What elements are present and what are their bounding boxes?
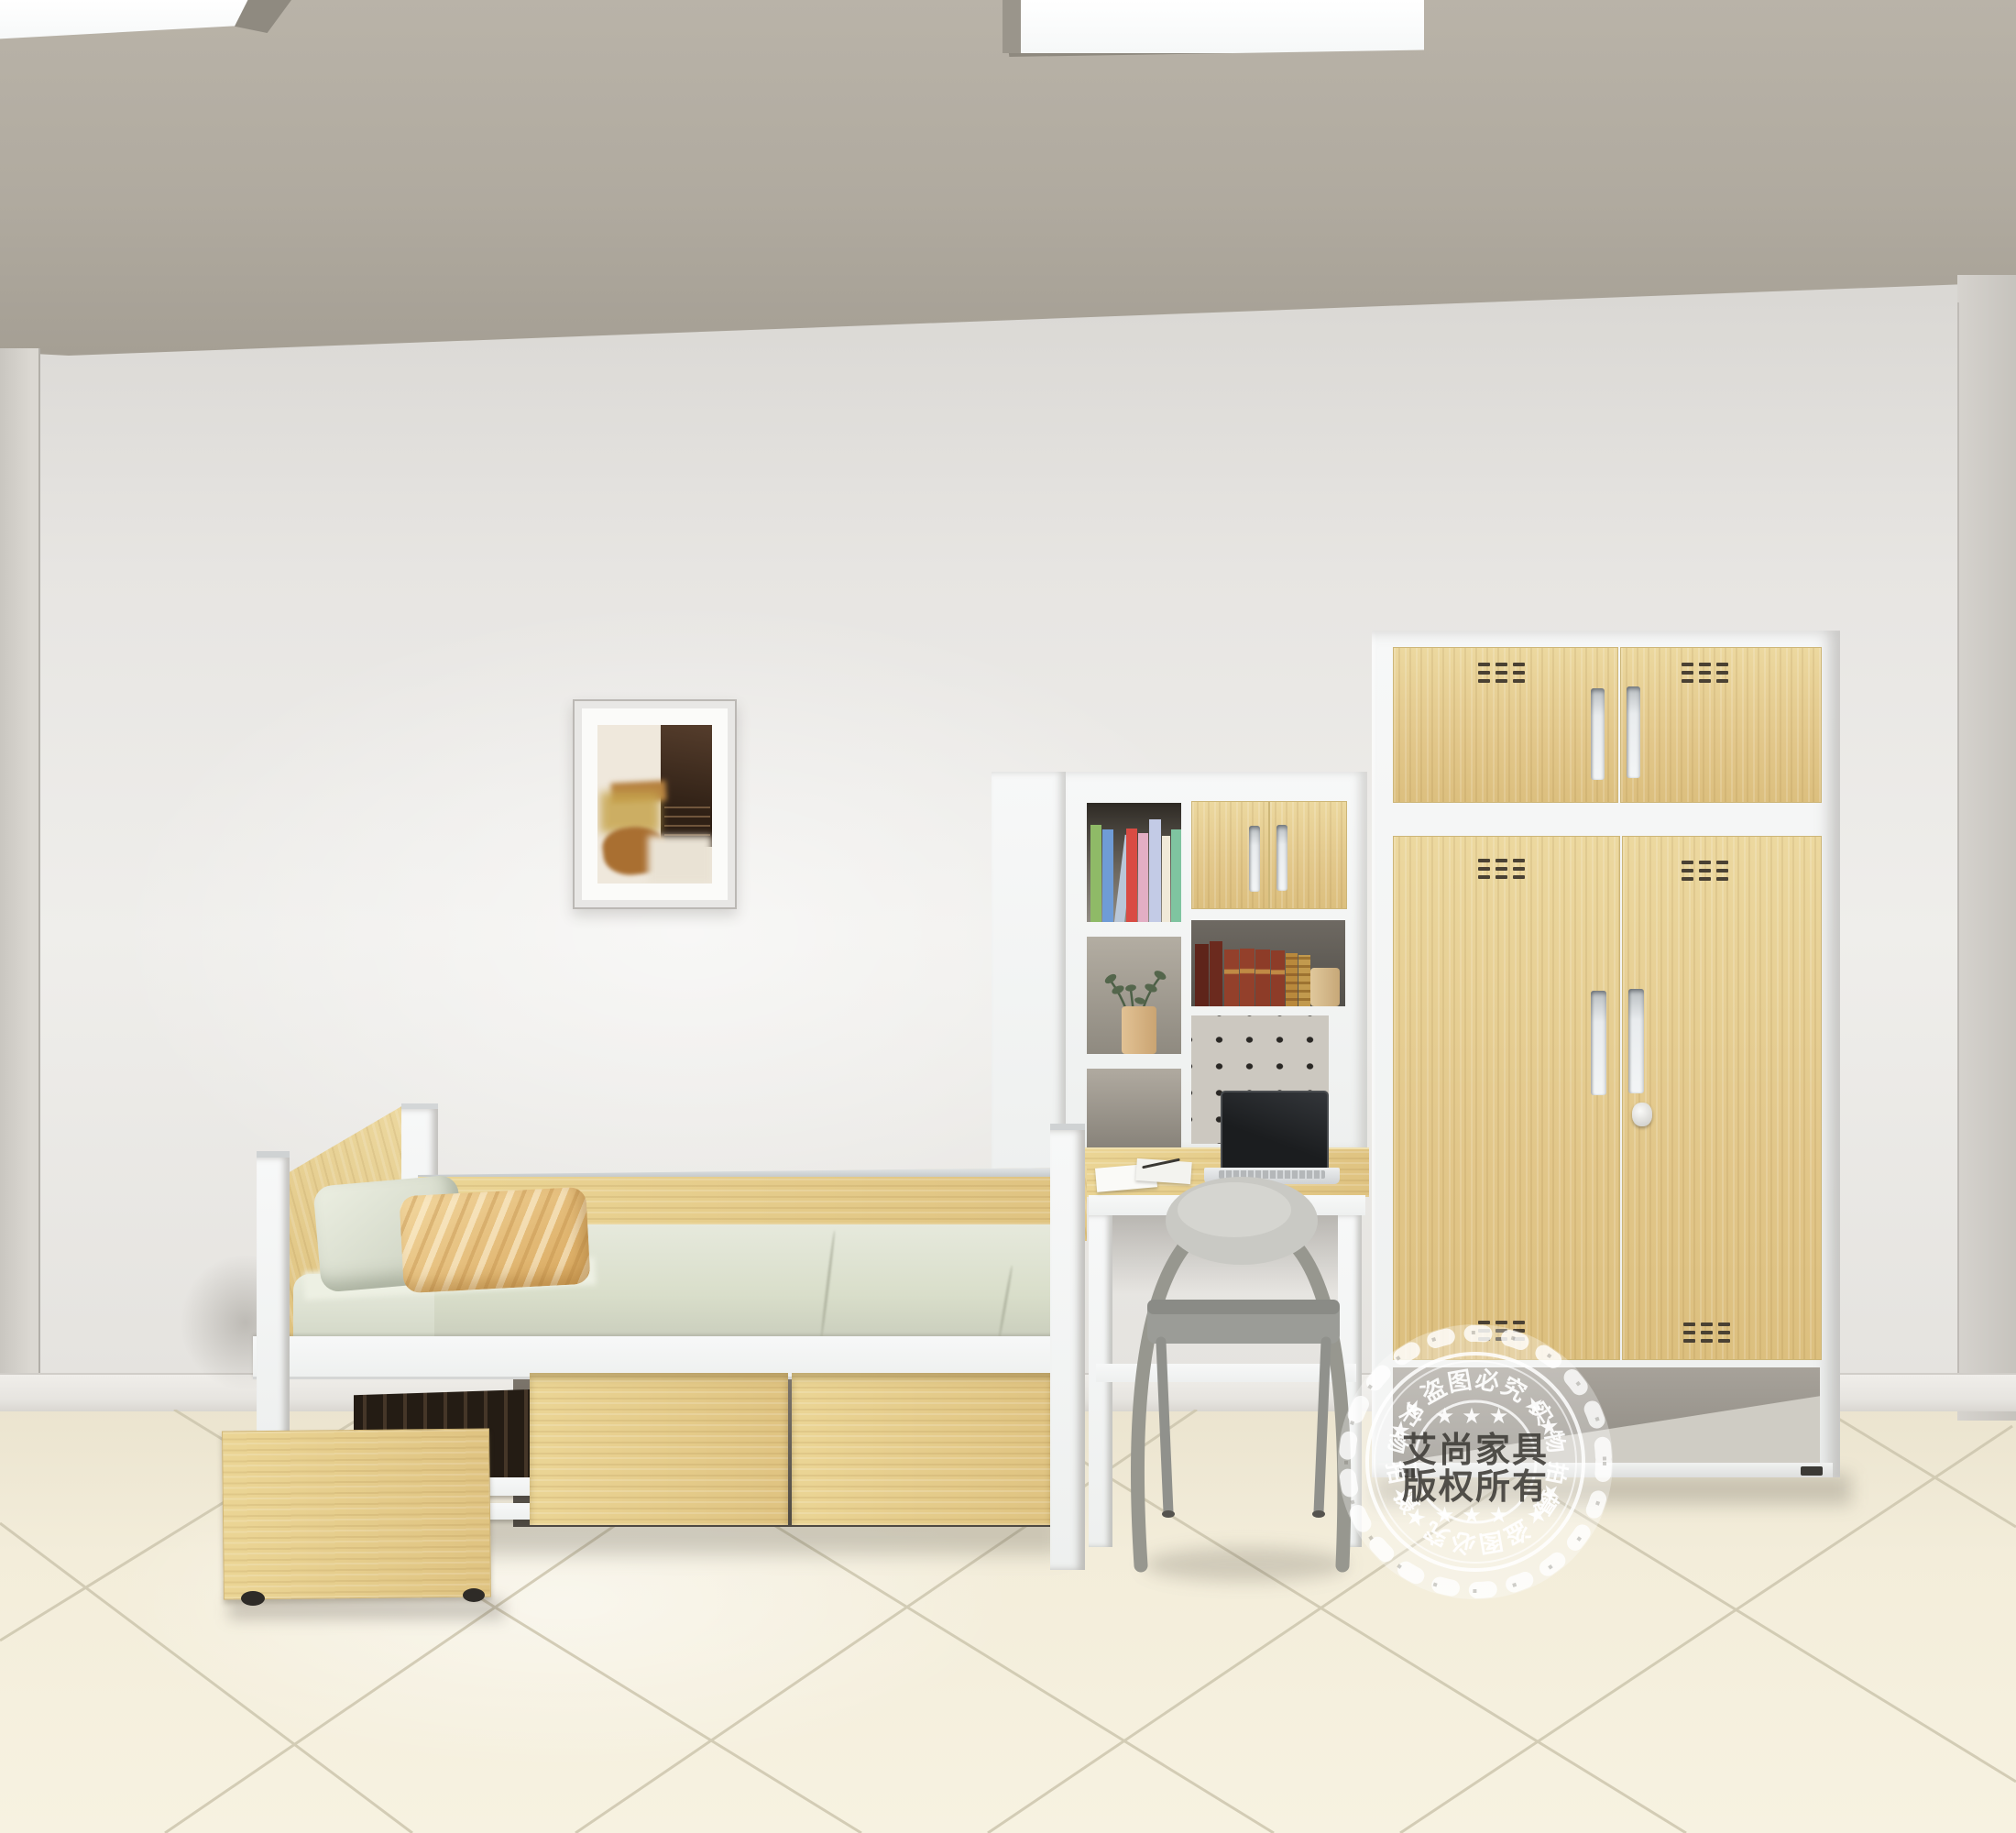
wardrobe-open-shelf	[1393, 1367, 1820, 1463]
laptop-base	[1204, 1168, 1340, 1184]
room	[0, 0, 2016, 1833]
vent-grille	[1682, 663, 1729, 685]
picture-frame	[573, 699, 737, 909]
stamp-brand-text: 艾尚家具	[1402, 1430, 1549, 1470]
wardrobe	[0, 0, 2016, 1833]
pulled-drawer-shadow	[229, 1599, 504, 1619]
book-spine	[1171, 829, 1181, 922]
left-wall	[0, 348, 40, 1379]
stamp-holes	[1346, 1333, 1605, 1591]
wardrobe-top-left-handle	[1591, 688, 1605, 780]
desk-leg	[1089, 1215, 1112, 1547]
chair-back-cushion	[1166, 1177, 1318, 1265]
hutch-cubby-books	[1087, 803, 1181, 922]
book-spine	[1126, 829, 1137, 922]
stamp-copyright-text: 版权所有	[1402, 1466, 1549, 1507]
chair-drawing	[1113, 1153, 1361, 1584]
drawer-slide-rail	[365, 1477, 685, 1496]
book-spine	[1195, 944, 1209, 1006]
vent-grille	[1478, 663, 1526, 685]
wardrobe-main-door-right	[1622, 836, 1822, 1360]
book-spine	[1114, 835, 1135, 922]
ceiling-light-left-endcap	[231, 0, 291, 33]
wardrobe-top-door-left	[1393, 647, 1618, 803]
floor-grout-lines	[0, 1410, 2016, 1833]
desk-leg	[1338, 1215, 1362, 1547]
headboard-post-right	[401, 1103, 438, 1356]
ceiling-light-left	[0, 0, 291, 42]
pillow-tan	[399, 1187, 590, 1294]
book-spine	[1240, 949, 1255, 1006]
chair-seat	[1147, 1300, 1340, 1344]
book-spine	[1090, 825, 1101, 922]
book-spine	[1210, 941, 1222, 1006]
desk-side-panel	[992, 772, 1066, 1182]
chair-cushion-highlight	[1178, 1182, 1291, 1237]
svg-text:★★盗图必究★★: ★★盗图必究★★	[1384, 1366, 1567, 1445]
pegboard	[1191, 1015, 1329, 1144]
wardrobe-top-right-handle	[1627, 686, 1640, 778]
wardrobe-main-door-left	[1393, 836, 1620, 1360]
book-spine	[1255, 949, 1270, 1006]
stamp-seal: ★★盗图必究★★ ★★盗图必究★★ 实物拍摄 实物拍摄 ★★★ ★★★ 艾尚家具…	[1327, 1313, 1624, 1610]
headboard-post-left	[257, 1151, 290, 1443]
stamp-arc-left-text: 实物拍摄	[1382, 1398, 1429, 1525]
plant-sprigs	[1087, 937, 1181, 1054]
desk-stretcher	[1096, 1364, 1356, 1382]
under-bed-drawer-right	[792, 1373, 1052, 1525]
book-spine	[1298, 955, 1310, 1006]
laptop-screen	[1221, 1091, 1329, 1171]
headboard-panel	[288, 1105, 403, 1356]
ceiling	[0, 0, 2016, 367]
stamp-center-ring	[1415, 1401, 1536, 1522]
stamp-outer-ring	[1367, 1354, 1583, 1570]
wardrobe-floor-shadow	[1375, 1474, 1851, 1505]
wardrobe-shelf-floor	[1393, 1367, 1820, 1463]
hutch-cubby-redbooks	[1191, 920, 1345, 1006]
mattress-head-end	[293, 1274, 434, 1342]
desk-apron	[1089, 1195, 1365, 1215]
under-bed-drawer-left	[530, 1373, 788, 1525]
stamp-arc-top-text: ★★盗图必究★★	[1384, 1366, 1567, 1445]
drawer-slide-rail	[385, 1503, 695, 1520]
plant-pot	[1122, 1006, 1156, 1054]
sheet-fold	[820, 1230, 836, 1337]
sheet-fold	[998, 1265, 1013, 1337]
pencil	[1324, 979, 1331, 1003]
floor	[0, 1410, 2016, 1833]
vent-grille	[1683, 1323, 1731, 1345]
wardrobe-bottom-rail	[1379, 1463, 1833, 1477]
pulled-out-drawer-front	[222, 1428, 491, 1599]
paint-mustard-wash	[600, 792, 660, 833]
svg-text:实物拍摄: 实物拍摄	[1524, 1397, 1571, 1526]
watermark-stamp: ★★盗图必究★★ ★★盗图必究★★ 实物拍摄 实物拍摄 ★★★ ★★★ 艾尚家具…	[0, 0, 2016, 1833]
footboard-panel	[1054, 1166, 1087, 1241]
book-spine	[1102, 829, 1113, 922]
desk-unit	[0, 0, 2016, 1833]
wardrobe-foot	[1801, 1466, 1823, 1476]
hutch-cubby-empty	[1087, 1069, 1181, 1149]
under-bed-shadow-box	[513, 1375, 1056, 1527]
book-spine	[1224, 949, 1239, 1006]
wardrobe-lock-knob	[1632, 1103, 1652, 1126]
chair-floor-shadow	[1144, 1547, 1349, 1582]
underbed-slat-tray	[354, 1384, 702, 1477]
stamp-scallop-edge	[1347, 1334, 1604, 1590]
book-spine	[1138, 833, 1148, 922]
laptop-keyboard	[1219, 1170, 1325, 1179]
pen	[1142, 1158, 1180, 1169]
right-wall-corner	[1957, 302, 1959, 1384]
right-wall	[1957, 275, 2016, 1421]
book-spine	[1286, 953, 1298, 1006]
baseboard	[0, 1373, 2016, 1411]
wardrobe-top-door-right	[1620, 647, 1822, 803]
foot-post	[1050, 1124, 1085, 1570]
hutch-door-handle	[1249, 826, 1260, 892]
stamp-arc-right-text: 实物拍摄	[1524, 1397, 1571, 1526]
svg-text:实物拍摄: 实物拍摄	[1382, 1398, 1429, 1525]
paint-scratches	[664, 801, 710, 836]
wardrobe-main-left-handle	[1591, 991, 1606, 1095]
book-spine	[1149, 819, 1161, 922]
hutch-cabinet-door-left	[1191, 801, 1269, 909]
drawer-wheel	[463, 1588, 485, 1602]
under-desk-shadow	[1112, 1215, 1338, 1294]
desktop	[1085, 1147, 1369, 1197]
paint-cream-field	[648, 836, 712, 884]
stamp-arc-bottom-text: ★★盗图必究★★	[1384, 1478, 1567, 1558]
stamp-stars-top: ★★★	[1435, 1403, 1517, 1429]
svg-text:★★盗图必究★★: ★★盗图必究★★	[1384, 1478, 1567, 1558]
pen	[1315, 985, 1329, 1004]
picture-mat	[582, 708, 728, 900]
wall-art	[0, 0, 2016, 1833]
hutch-cabinet	[1191, 801, 1345, 907]
mattress-top-highlight	[303, 1257, 596, 1301]
chair-foot	[1162, 1510, 1175, 1518]
pencil-cup	[1310, 968, 1340, 1006]
ceiling-light-right-endcap	[1003, 0, 1021, 53]
chair-seat-edge	[1147, 1300, 1340, 1314]
chair-front-leg	[1161, 1342, 1168, 1512]
chair-front-leg	[1319, 1342, 1326, 1512]
bed-side-rail	[418, 1168, 1068, 1246]
book-spine	[1162, 836, 1170, 922]
paper-sheet	[1095, 1163, 1157, 1192]
bed	[0, 0, 2016, 1833]
stamp-disc	[1338, 1324, 1613, 1599]
chair-foot	[1312, 1510, 1325, 1518]
pillow-sage	[312, 1174, 466, 1292]
bed-rail-cap	[418, 1168, 1068, 1177]
abstract-painting	[597, 725, 712, 884]
hutch-frame	[1066, 772, 1367, 1151]
ceiling-light-right	[1003, 0, 1424, 57]
bed-wall-shadow	[180, 1254, 290, 1391]
back-wall	[0, 273, 2016, 1411]
notebook	[1135, 1158, 1192, 1184]
paint-tan-stroke	[610, 781, 666, 805]
drawer-wheel	[241, 1591, 265, 1606]
desk-chair	[0, 0, 2016, 1833]
stamp-stars-bottom: ★★★	[1435, 1502, 1517, 1528]
hutch-cubby-plant	[1087, 937, 1181, 1054]
vent-grille	[1478, 1321, 1526, 1343]
bed-floor-shadow	[275, 1510, 1063, 1554]
hutch-cabinet-door-right	[1269, 801, 1347, 909]
vent-grille	[1478, 859, 1526, 881]
mattress	[400, 1224, 1059, 1342]
vent-grille	[1682, 861, 1729, 883]
hutch-door-handle	[1276, 825, 1287, 891]
paint-dark-block	[661, 725, 712, 847]
wardrobe-main-right-handle	[1628, 989, 1644, 1093]
dorm-room-render: ★★盗图必究★★ ★★盗图必究★★ 实物拍摄 实物拍摄 ★★★ ★★★ 艾尚家具…	[0, 0, 2016, 1833]
bed-frame-band	[253, 1336, 1070, 1379]
paint-caramel-blob	[600, 823, 671, 878]
chair-arc-frame	[1137, 1220, 1343, 1565]
stamp-inner-ring	[1375, 1361, 1576, 1563]
wardrobe-foot	[1399, 1468, 1419, 1477]
wardrobe-carcass	[1372, 631, 1840, 1477]
book-spine	[1271, 950, 1285, 1006]
